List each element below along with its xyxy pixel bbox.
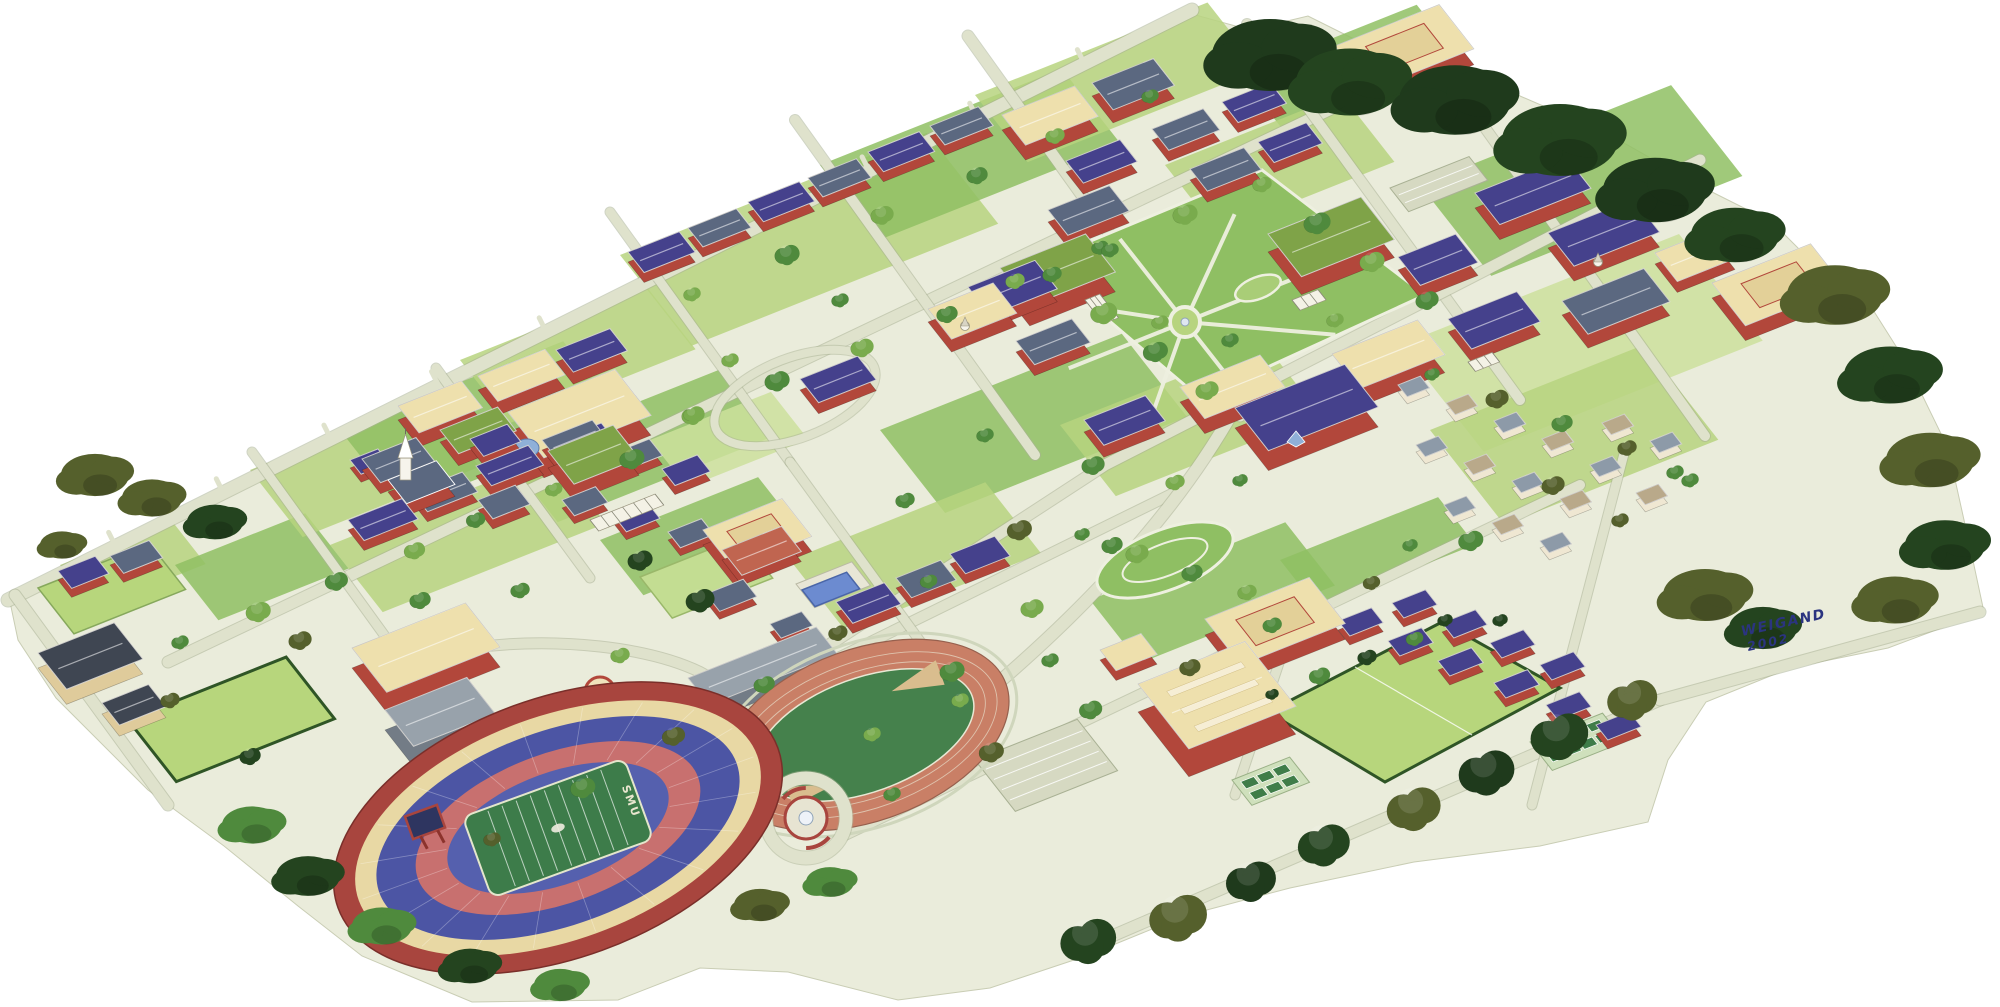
tree-mass <box>56 454 134 496</box>
tree-mass <box>37 531 88 558</box>
quad-fountain <box>1181 318 1189 326</box>
chapel-steeple <box>400 458 411 480</box>
plaza-fountain <box>799 811 813 825</box>
smu-campus-watercolor-map: SMU WEIGAND 2002 <box>0 0 2000 1007</box>
campus-map-page: SMU WEIGAND 2002 <box>0 0 2000 1007</box>
